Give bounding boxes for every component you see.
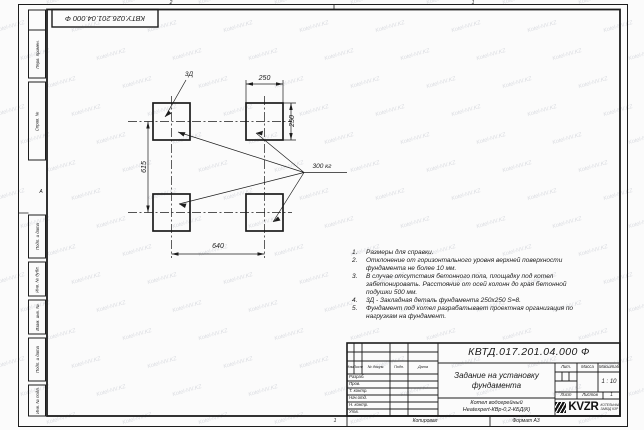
kvzr-logo-subtext: КОТЕЛЬНЫЙ ЗАВОД КЗР [601, 404, 621, 411]
margin-label-sprav-no: Справ. № [28, 82, 46, 160]
margin-label-inv-dubl: Инв. № дубл. [28, 262, 46, 296]
copied-label: Копировал [400, 417, 450, 426]
margin-label-podp-data-2: Подп. и дата [28, 338, 46, 381]
row-utv: Утв. [349, 409, 389, 416]
zone-marker-top-left: 2 [166, 0, 176, 8]
mass-label: Масса [577, 363, 598, 372]
leader-lines [165, 80, 347, 222]
margin-label-perv-primen: Перв. примен. [28, 30, 46, 78]
note-item: 5.Фундамент под котел разрабатывает прое… [352, 305, 580, 321]
dimension-lines [148, 80, 296, 254]
sheets-value: 1 [603, 392, 620, 399]
zone-marker-left: А [36, 188, 46, 198]
dim-250-top: 250 [249, 74, 280, 83]
company-logo: KVZR КОТЕЛЬНЫЙ ЗАВОД КЗР [556, 399, 620, 416]
note-item: 4.3Д - Закладная деталь фундамента 250х2… [352, 297, 580, 305]
title-designation: КВТД.017.201.04.000 Ф [438, 343, 620, 363]
col-dokum: № докум. [362, 361, 390, 374]
format-label: Формат А3 [505, 417, 547, 426]
page: { "watermark": { "text": "Kotel-NV.KZ" }… [0, 0, 644, 430]
dim-615-left: 615 [140, 152, 150, 182]
foundation-pads [153, 103, 283, 231]
notes-list: 1.Размеры для справки. 2.Отклонение от г… [352, 249, 580, 321]
col-data: Дата [408, 361, 438, 374]
product-name-line2: Heatexpert-КВр-0,2-КБД(К) [463, 407, 531, 414]
product-name-line1: Котел водогрейный [470, 400, 522, 407]
title-doc-name: Задание на установку фундамента [441, 363, 552, 398]
note-item: 1.Размеры для справки. [352, 249, 580, 257]
scale-label: Масштаб [598, 363, 620, 372]
margin-label-podp-data-1: Подп. и дата [28, 215, 46, 258]
arrowheads [146, 82, 292, 255]
margin-label-inv-podl: Инв. № подл. [28, 385, 46, 416]
col-podp: Подп. [390, 361, 408, 374]
col-list: Лист [354, 361, 362, 374]
detail-label: 3Д [181, 70, 197, 79]
note-item: 2.Отклонение от горизонтального уровня в… [352, 257, 580, 273]
row-prov: Пров. [349, 381, 389, 388]
kvzr-logo-text: KVZR [568, 401, 598, 414]
zone-marker-bottom: 1 [330, 417, 340, 426]
lit-label: Лит. [555, 363, 577, 372]
sheet-label: Лист [555, 392, 577, 399]
drawing-sheet: Kotel-NV.KZKotel-NV.KZKotel-NV.KZKotel-N… [0, 0, 644, 430]
row-nkontr: Н. контр. [349, 402, 389, 409]
margin-label-vzam-inv: Взам. инв. № [28, 300, 46, 334]
load-label: 300 кг [300, 162, 344, 171]
row-razrab: Разраб. [349, 374, 389, 381]
scale-value: 1 : 10 [598, 372, 620, 392]
dim-640-bottom: 640 [198, 242, 238, 252]
kvzr-logo-icon [555, 402, 566, 413]
product-name: Котел водогрейный Heatexpert-КВр-0,2-КБД… [440, 398, 553, 416]
zone-marker-top-right: 1 [468, 0, 478, 8]
top-stamp-text: КВТУ.026.201.04.000 Ф [52, 9, 158, 27]
row-nachotd: Нач.отд. [349, 395, 389, 402]
note-item: 3.В случае отсутствия бетонного пола, пл… [352, 273, 580, 297]
sheets-label: Листов [577, 392, 603, 399]
row-tkontr: Т. контр. [349, 388, 389, 395]
dim-250-right: 250 [288, 106, 298, 136]
